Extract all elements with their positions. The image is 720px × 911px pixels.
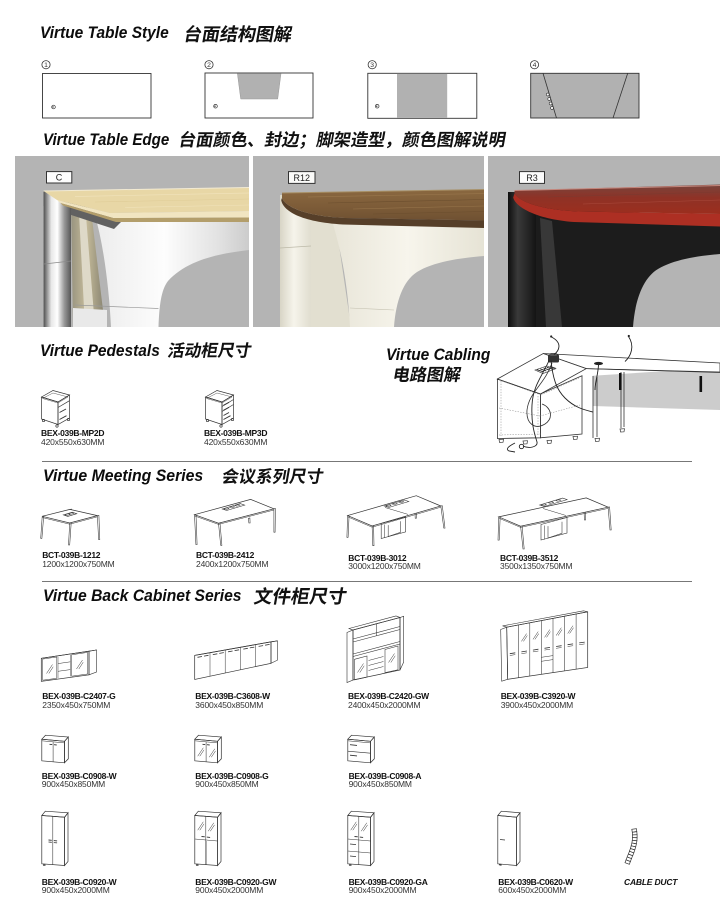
svg-text:R12: R12 xyxy=(294,173,311,183)
svg-text:1: 1 xyxy=(44,62,48,69)
svg-text:R3: R3 xyxy=(526,173,538,183)
svg-text:C: C xyxy=(56,173,63,183)
svg-text:3: 3 xyxy=(370,62,374,69)
svg-text:4: 4 xyxy=(533,62,537,69)
svg-text:2: 2 xyxy=(207,62,211,69)
